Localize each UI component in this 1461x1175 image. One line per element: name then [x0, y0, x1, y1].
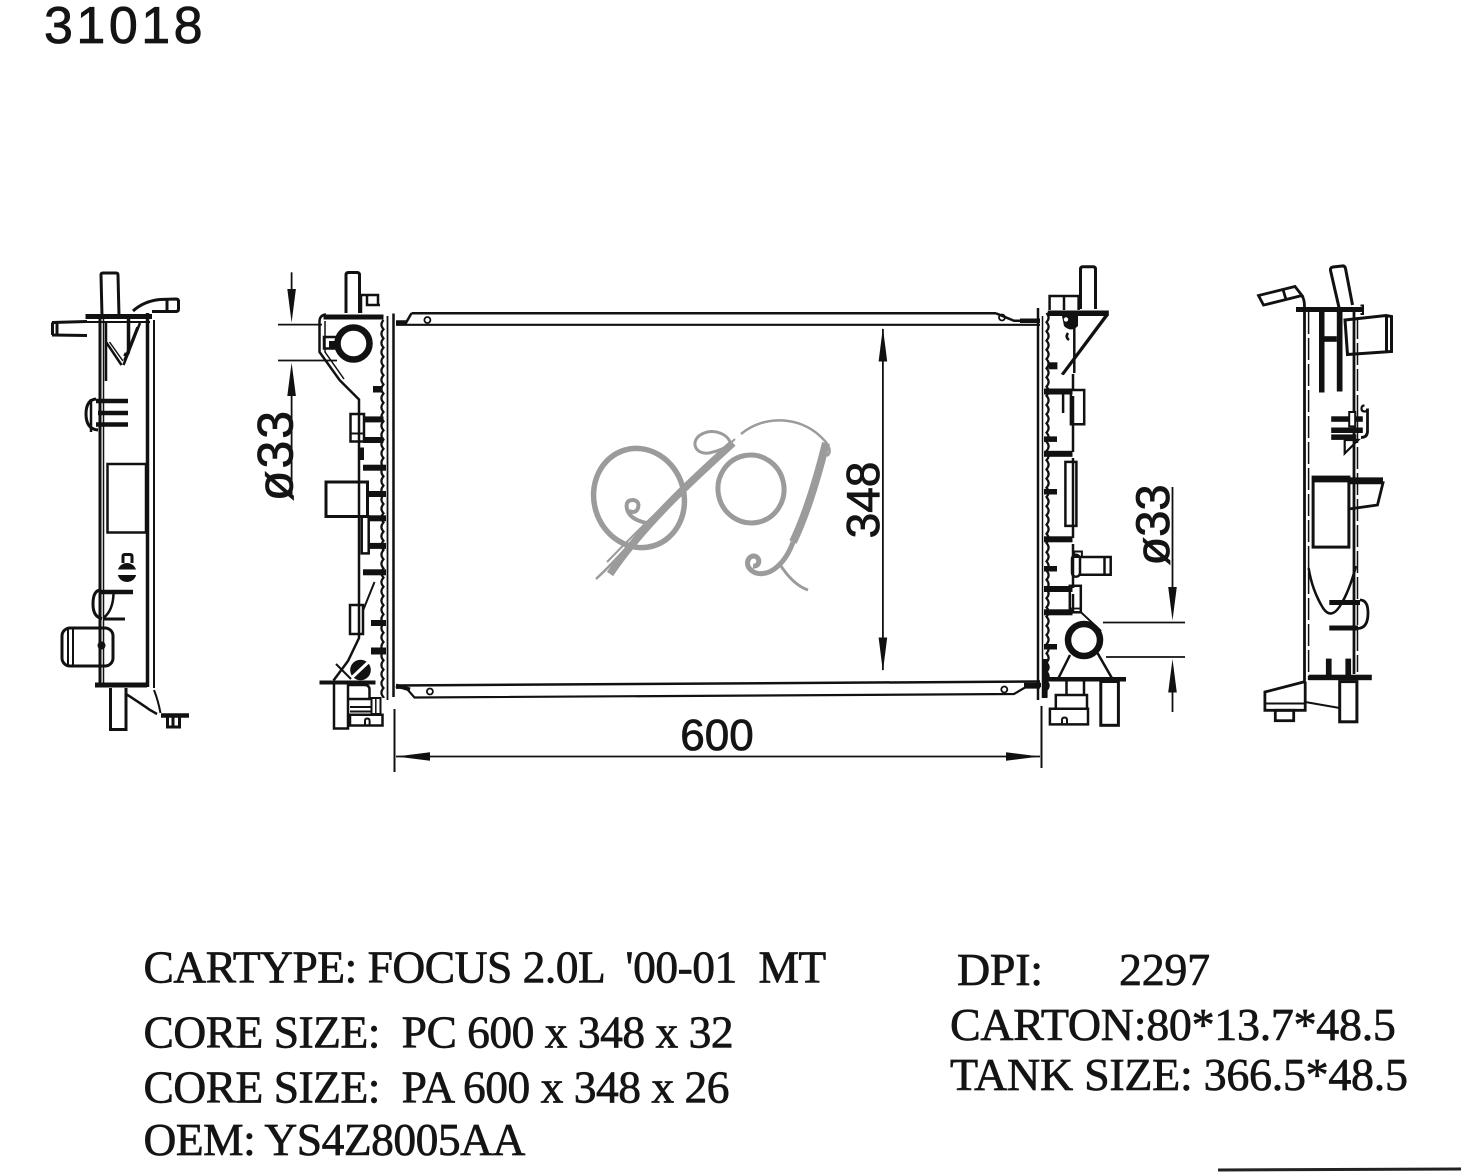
svg-text:OEM: YS4Z8005AA: OEM: YS4Z8005AA	[144, 1114, 526, 1165]
svg-text:CARTYPE: FOCUS 2.0L '00-01 M: CARTYPE: FOCUS 2.0L '00-01 MT	[144, 942, 827, 993]
svg-text:2297: 2297	[1119, 944, 1210, 995]
svg-text:ø33: ø33	[1126, 485, 1179, 566]
svg-text:CORE SIZE: PA 600 x 348 x 26: CORE SIZE: PA 600 x 348 x 26	[144, 1062, 730, 1113]
svg-text:CORE SIZE: PC 600 x 348 x 32: CORE SIZE: PC 600 x 348 x 32	[144, 1007, 734, 1058]
svg-text:600: 600	[680, 711, 753, 760]
svg-text:CARTON:80*13.7*48.5: CARTON:80*13.7*48.5	[950, 999, 1396, 1050]
svg-text:348: 348	[837, 462, 889, 539]
svg-text:TANK SIZE: 366.5*48.5: TANK SIZE: 366.5*48.5	[950, 1049, 1408, 1100]
svg-text:31018: 31018	[44, 0, 206, 55]
svg-text:ø33: ø33	[248, 409, 304, 501]
svg-text:DPI:: DPI:	[957, 944, 1043, 995]
